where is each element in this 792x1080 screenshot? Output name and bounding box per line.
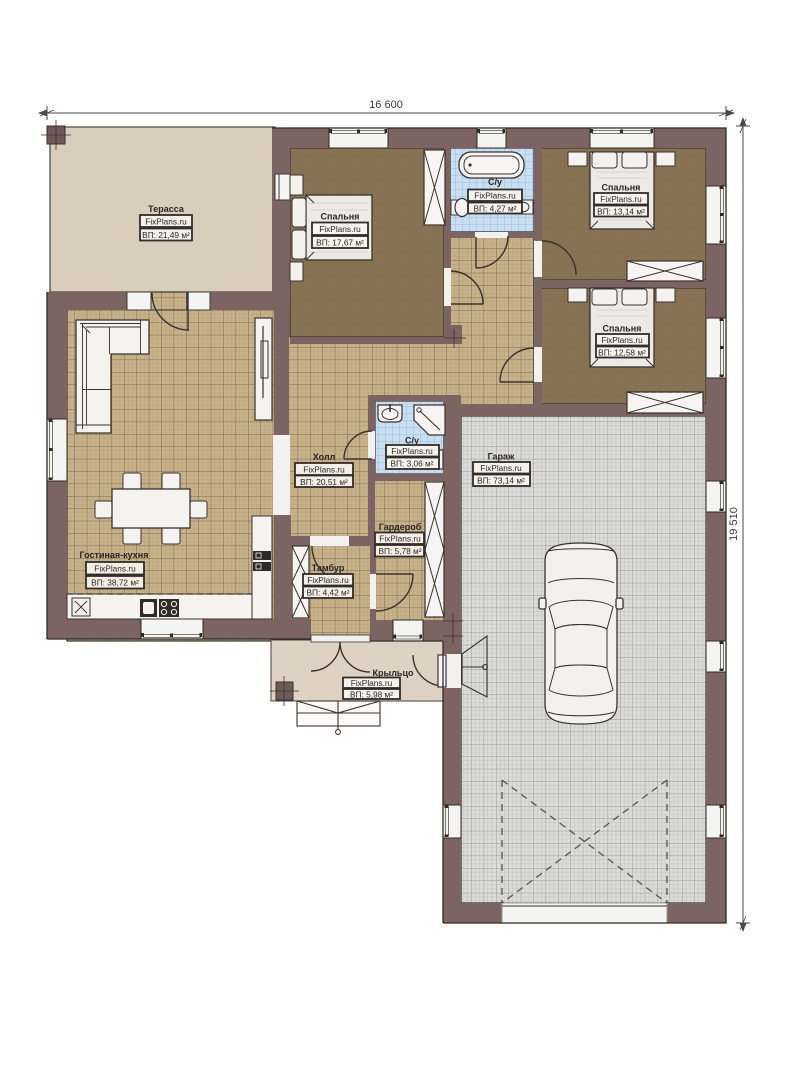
svg-text:FixPlans.ru: FixPlans.ru <box>391 446 433 456</box>
svg-text:FixPlans.ru: FixPlans.ru <box>600 194 642 204</box>
svg-text:ВП: 4,42 м²: ВП: 4,42 м² <box>306 588 349 598</box>
svg-text:ВП: 17,67 м²: ВП: 17,67 м² <box>316 238 364 248</box>
svg-text:ВП: 20,51 м²: ВП: 20,51 м² <box>300 477 348 487</box>
svg-text:ВП: 38,72 м²: ВП: 38,72 м² <box>91 578 139 588</box>
svg-text:ВП: 5,78 м²: ВП: 5,78 м² <box>378 546 421 556</box>
svg-text:Гараж: Гараж <box>488 452 515 462</box>
svg-text:ВП: 4,27 м²: ВП: 4,27 м² <box>473 204 516 214</box>
svg-text:FixPlans.ru: FixPlans.ru <box>474 191 516 201</box>
svg-text:ВП: 73,14 м²: ВП: 73,14 м² <box>477 476 525 486</box>
svg-text:Гардероб: Гардероб <box>379 522 422 532</box>
svg-text:FixPlans.ru: FixPlans.ru <box>94 564 136 574</box>
svg-text:С/у: С/у <box>488 177 502 187</box>
svg-text:FixPlans.ru: FixPlans.ru <box>307 575 349 585</box>
svg-text:Спальня: Спальня <box>603 324 642 334</box>
svg-text:ВП: 21,49 м²: ВП: 21,49 м² <box>142 230 190 240</box>
svg-text:FixPlans.ru: FixPlans.ru <box>145 217 187 227</box>
svg-text:Спальня: Спальня <box>602 183 641 193</box>
svg-text:FixPlans.ru: FixPlans.ru <box>480 463 522 473</box>
svg-text:Терасса: Терасса <box>148 204 185 214</box>
svg-text:19 510: 19 510 <box>728 507 740 541</box>
svg-text:ВП: 12,58 м²: ВП: 12,58 м² <box>598 348 646 358</box>
svg-text:ВП: 3,06 м²: ВП: 3,06 м² <box>390 459 433 469</box>
svg-text:Спальня: Спальня <box>321 212 360 222</box>
svg-text:FixPlans.ru: FixPlans.ru <box>319 224 361 234</box>
svg-text:Крыльцо: Крыльцо <box>373 668 414 678</box>
svg-text:ВП: 5,98 м²: ВП: 5,98 м² <box>350 690 393 700</box>
svg-text:ВП: 13,14 м²: ВП: 13,14 м² <box>597 207 645 217</box>
svg-text:Тамбур: Тамбур <box>312 563 345 573</box>
svg-text:16 600: 16 600 <box>369 99 403 111</box>
svg-text:FixPlans.ru: FixPlans.ru <box>379 534 421 544</box>
svg-text:Гостиная-кухня: Гостиная-кухня <box>80 550 149 560</box>
svg-text:FixPlans.ru: FixPlans.ru <box>601 335 643 345</box>
svg-text:С/у: С/у <box>405 436 419 446</box>
svg-text:FixPlans.ru: FixPlans.ru <box>303 465 345 475</box>
svg-text:FixPlans.ru: FixPlans.ru <box>351 678 393 688</box>
svg-text:Холл: Холл <box>313 452 336 462</box>
